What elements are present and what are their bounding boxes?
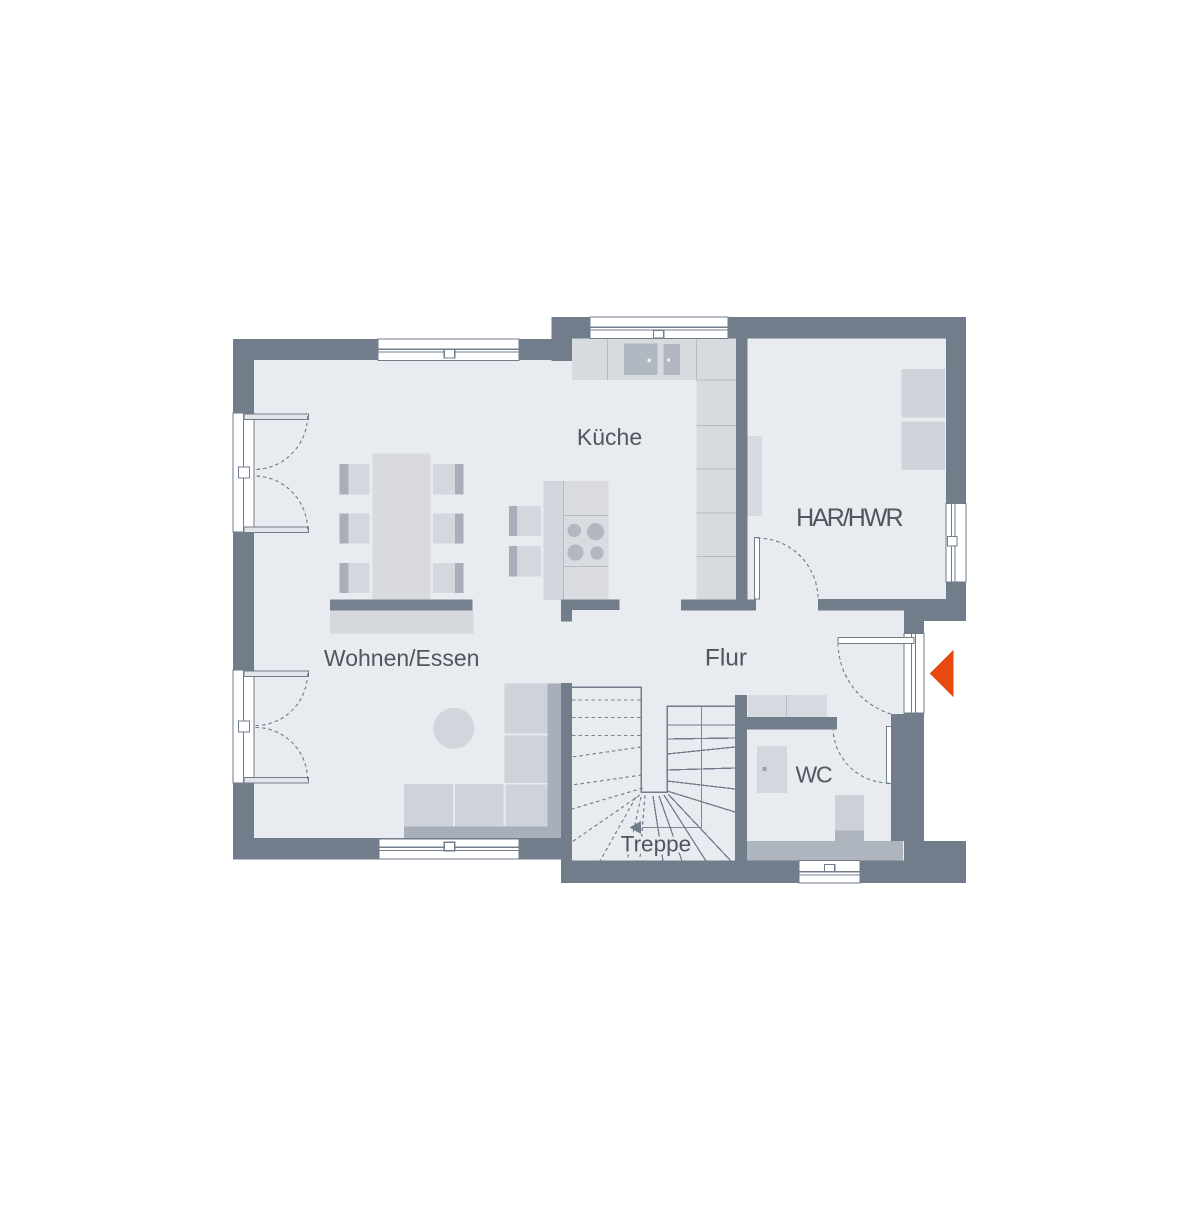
svg-text:HAR/HWR: HAR/HWR <box>796 504 902 532</box>
svg-text:Treppe: Treppe <box>621 832 691 857</box>
svg-text:Küche: Küche <box>577 424 642 450</box>
svg-text:Flur: Flur <box>705 645 747 672</box>
svg-text:WC: WC <box>795 762 832 788</box>
svg-text:Wohnen/Essen: Wohnen/Essen <box>324 645 480 671</box>
